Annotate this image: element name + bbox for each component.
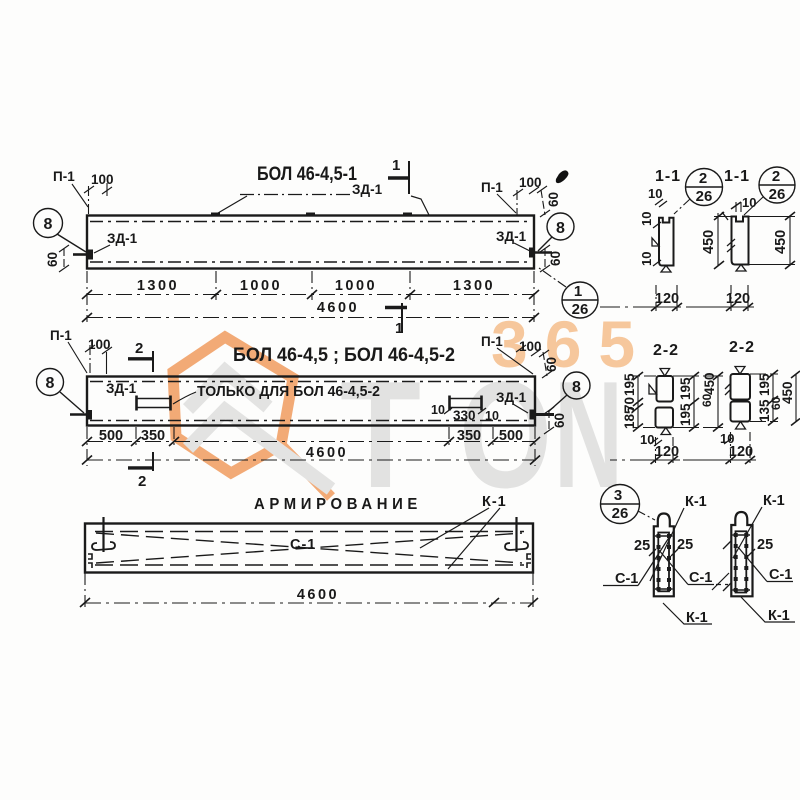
svg-text:26: 26 (612, 505, 629, 522)
svg-text:10: 10 (742, 195, 756, 210)
svg-text:1300: 1300 (137, 278, 179, 294)
svg-text:60: 60 (546, 192, 561, 207)
svg-text:60: 60 (45, 252, 60, 267)
svg-text:350: 350 (457, 428, 481, 444)
svg-text:10: 10 (639, 252, 654, 266)
svg-text:1300: 1300 (453, 278, 495, 294)
svg-text:195: 195 (678, 403, 693, 426)
svg-text:ТОЛЬКО ДЛЯ БОЛ 46-4,5-2: ТОЛЬКО ДЛЯ БОЛ 46-4,5-2 (197, 383, 380, 400)
svg-text:120: 120 (655, 291, 679, 307)
svg-text:10: 10 (648, 186, 662, 201)
svg-text:1: 1 (392, 157, 400, 174)
svg-text:10: 10 (485, 409, 499, 423)
svg-text:100: 100 (91, 172, 114, 187)
svg-text:К-1: К-1 (685, 494, 707, 510)
svg-text:500: 500 (99, 428, 123, 444)
svg-text:К-1: К-1 (482, 494, 507, 510)
svg-text:ЗД-1: ЗД-1 (352, 182, 383, 197)
svg-text:26: 26 (769, 186, 786, 203)
svg-text:25: 25 (677, 537, 693, 553)
svg-text:195: 195 (757, 373, 772, 396)
svg-text:4600: 4600 (306, 445, 348, 461)
svg-text:450: 450 (780, 381, 795, 404)
svg-text:1000: 1000 (240, 278, 282, 294)
svg-text:350: 350 (141, 428, 165, 444)
svg-text:26: 26 (696, 188, 713, 205)
svg-text:2: 2 (699, 170, 707, 187)
svg-text:1000: 1000 (335, 278, 377, 294)
svg-text:500: 500 (499, 428, 523, 444)
svg-text:П-1: П-1 (481, 180, 503, 195)
svg-text:2: 2 (138, 473, 146, 490)
svg-text:4600: 4600 (317, 300, 359, 316)
svg-text:1: 1 (574, 283, 582, 300)
svg-text:ЗД-1: ЗД-1 (106, 381, 137, 396)
svg-text:2: 2 (772, 168, 780, 185)
svg-text:2: 2 (135, 340, 143, 357)
svg-text:120: 120 (729, 444, 753, 460)
svg-text:330: 330 (453, 408, 476, 423)
svg-text:195: 195 (622, 373, 637, 396)
svg-text:185: 185 (622, 406, 637, 429)
svg-text:195: 195 (678, 377, 693, 400)
svg-text:25: 25 (757, 537, 773, 553)
svg-text:25: 25 (634, 538, 650, 554)
svg-text:ЗД-1: ЗД-1 (496, 229, 527, 244)
svg-text:БОЛ 46-4,5-1: БОЛ 46-4,5-1 (257, 164, 357, 185)
svg-text:3: 3 (614, 487, 622, 504)
svg-text:1-1: 1-1 (655, 168, 681, 185)
svg-text:100: 100 (519, 175, 542, 190)
svg-text:С-1: С-1 (290, 537, 316, 553)
svg-text:1: 1 (395, 320, 403, 337)
svg-text:100: 100 (88, 337, 111, 352)
svg-text:450: 450 (702, 372, 717, 395)
svg-text:120: 120 (655, 444, 679, 460)
svg-text:АРМИРОВАНИЕ: АРМИРОВАНИЕ (254, 496, 422, 513)
svg-text:10: 10 (431, 403, 445, 417)
svg-text:26: 26 (572, 301, 589, 318)
svg-text:365: 365 (491, 307, 652, 381)
svg-text:2-2: 2-2 (729, 339, 755, 356)
svg-text:120: 120 (726, 291, 750, 307)
svg-text:ЗД-1: ЗД-1 (107, 231, 138, 246)
svg-text:1-1: 1-1 (724, 168, 750, 185)
svg-text:10: 10 (639, 212, 654, 226)
svg-text:10: 10 (640, 432, 654, 447)
svg-text:П-1: П-1 (50, 328, 72, 343)
svg-text:ЗД-1: ЗД-1 (496, 390, 527, 405)
svg-text:С-1: С-1 (615, 571, 638, 587)
svg-text:450: 450 (773, 230, 789, 254)
svg-text:С-1: С-1 (689, 570, 712, 586)
svg-text:С-1: С-1 (769, 567, 792, 583)
svg-text:60: 60 (552, 413, 567, 428)
svg-text:П-1: П-1 (53, 169, 75, 184)
svg-text:8: 8 (46, 375, 55, 392)
svg-text:60: 60 (700, 393, 714, 407)
svg-text:450: 450 (701, 230, 717, 254)
svg-text:8: 8 (44, 216, 53, 233)
svg-text:2-2: 2-2 (653, 342, 679, 359)
svg-text:БОЛ 46-4,5 ; БОЛ 46-4,5-2: БОЛ 46-4,5 ; БОЛ 46-4,5-2 (233, 345, 455, 366)
svg-text:8: 8 (572, 379, 581, 396)
svg-text:П-1: П-1 (481, 334, 503, 349)
svg-text:60: 60 (544, 357, 559, 372)
svg-text:К-1: К-1 (763, 493, 785, 509)
svg-text:8: 8 (556, 220, 565, 237)
svg-text:4600: 4600 (297, 587, 339, 603)
svg-text:100: 100 (519, 339, 542, 354)
svg-text:60: 60 (548, 251, 563, 266)
